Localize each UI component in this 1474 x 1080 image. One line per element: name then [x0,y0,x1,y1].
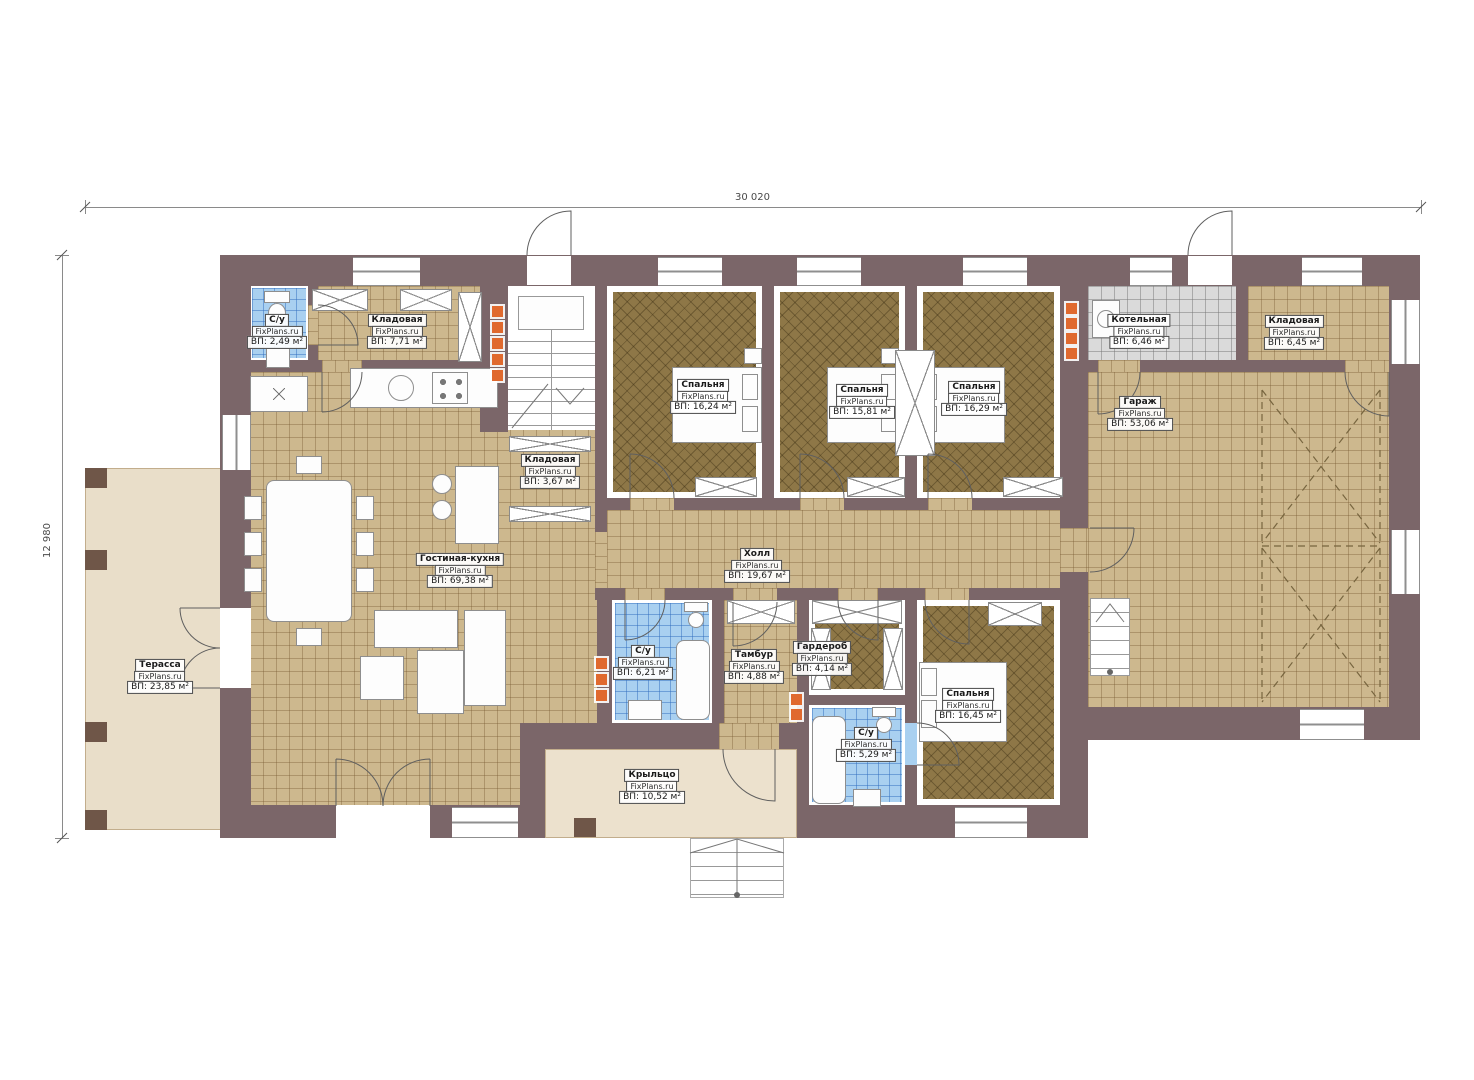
room-area: ВП: 6,45 м² [1264,337,1324,350]
door-opening [905,723,917,765]
bar-stool [432,500,452,520]
dimension-extension [55,838,69,839]
wall-partition [905,588,917,805]
room-label-porch: Крыльцо FixPlans.ru ВП: 10,52 м² [619,770,685,804]
pillow [742,406,758,432]
room-area: ВП: 3,67 м² [520,476,580,489]
room-label-storage-right: Кладовая FixPlans.ru ВП: 6,45 м² [1264,316,1324,350]
door-opening [928,498,972,510]
dimension-extension [55,255,69,256]
room-area: ВП: 6,21 м² [613,667,673,680]
wall-partition [712,597,724,723]
room-label-bedroom1: Спальня FixPlans.ru ВП: 16,24 м² [670,380,736,414]
radiator-section [791,694,802,705]
window [452,807,518,838]
washbasin [628,700,662,720]
wardrobe [695,477,757,497]
chair [244,532,262,556]
chair [356,532,374,556]
nightstand [744,348,762,364]
room-area: ВП: 2,49 м² [247,336,307,349]
room-label-hall: Холл FixPlans.ru ВП: 19,67 м² [724,549,790,583]
terrace-pillar [85,550,107,570]
room-area: ВП: 16,29 м² [941,403,1007,416]
dimension-extension [85,200,86,214]
room-label-bedroom2: Спальня FixPlans.ru ВП: 15,81 м² [829,385,895,419]
wall-partition [762,286,774,498]
double-door-opening [336,805,430,838]
room-label-vestibule: Тамбур FixPlans.ru ВП: 4,88 м² [724,650,784,684]
exterior-door-opening [1188,256,1232,285]
dimension-width: 30 020 [735,192,770,203]
terrace-pillar [85,722,107,742]
door-opening [800,498,844,510]
wardrobe [400,289,452,311]
room-area: ВП: 4,14 м² [792,663,852,676]
door-opening [308,305,318,345]
wardrobe [895,350,935,456]
radiator-section [596,674,607,685]
wardrobe [883,628,903,690]
kitchen-island [455,466,499,544]
kitchen-stove [432,372,468,404]
room-label-garage: Гараж FixPlans.ru ВП: 53,06 м² [1107,397,1173,431]
room-area: ВП: 16,45 м² [935,710,1001,723]
porch-pillar [574,818,596,837]
dimension-extension [1421,200,1422,214]
room-label-bathroom-mid: С/у FixPlans.ru ВП: 6,21 м² [613,646,673,680]
wall-partition [809,695,905,705]
radiator-section [492,322,503,333]
coffee-table [360,656,404,700]
radiator-section [492,370,503,381]
room-area: ВП: 69,38 м² [427,575,493,588]
room-area: ВП: 19,67 м² [724,570,790,583]
door-opening [838,588,878,600]
room-label-living: Гостиная-кухня FixPlans.ru ВП: 69,38 м² [416,554,504,588]
terrace-floor [85,468,222,830]
radiator-section [492,354,503,365]
living-hall-passage [595,530,607,588]
radiator-section [1066,303,1077,314]
window [797,257,861,286]
room-area: ВП: 23,85 м² [127,681,193,694]
garage-steps [1090,598,1130,676]
wardrobe [509,436,591,452]
wall-exterior-bottom-mid [797,805,1088,838]
room-label-storage-small: Кладовая FixPlans.ru ВП: 3,67 м² [520,455,580,489]
room-label-boiler: Котельная FixPlans.ru ВП: 6,46 м² [1107,315,1170,349]
pillow [742,374,758,400]
chair [356,568,374,592]
wardrobe [988,602,1042,626]
dimension-line-left [62,255,63,838]
chair [296,456,322,474]
window [1130,257,1172,286]
dimension-line-top [85,207,1421,208]
room-area: ВП: 4,88 м² [724,671,784,684]
bar-stool [432,474,452,494]
washbasin [266,348,290,368]
appliance-mark [273,388,285,400]
room-area: ВП: 15,81 м² [829,406,895,419]
chair [244,496,262,520]
wall-partition [597,588,612,723]
window [1300,709,1364,740]
radiator-section [596,658,607,669]
door-opening [925,588,969,600]
floor-plan: 30 020 12 980 Терасса FixPlans.ru ВП: 23… [0,0,1474,1080]
toilet [684,602,708,612]
porch-steps [690,838,784,898]
room-label-bathroom-top: С/у FixPlans.ru ВП: 2,49 м² [247,315,307,349]
washbasin [853,789,881,807]
room-label-bedroom4: Спальня FixPlans.ru ВП: 16,45 м² [935,689,1001,723]
room-area: ВП: 6,46 м² [1109,336,1169,349]
window [963,257,1027,286]
chair [296,628,322,646]
hall-floor [607,510,1060,588]
room-label-bathroom-bottom: С/у FixPlans.ru ВП: 5,29 м² [836,728,896,762]
wardrobe [812,600,902,624]
wall-partition [1236,286,1248,372]
radiator-section [1066,333,1077,344]
staircase-divider [551,330,552,430]
room-area: ВП: 10,52 м² [619,791,685,804]
wall-garage-bottom [1085,707,1420,740]
terrace-pillar [85,468,107,488]
wardrobe [458,292,482,362]
door-opening [733,588,777,600]
radiator-section [596,690,607,701]
room-area: ВП: 53,06 м² [1107,418,1173,431]
toilet [872,707,896,717]
window [353,257,420,286]
door-opening [1345,360,1389,372]
wall-partition [595,286,607,532]
radiator-section [1066,318,1077,329]
room-area: ВП: 5,29 м² [836,749,896,762]
room-label-storage-top: Кладовая FixPlans.ru ВП: 7,71 м² [367,315,427,349]
chair [244,568,262,592]
entrance-opening [719,723,779,749]
door-opening [1060,528,1088,572]
wardrobe [312,289,368,311]
wardrobe [509,506,591,522]
bathtub [676,640,710,720]
window [1391,300,1420,364]
room-area: ВП: 7,71 м² [367,336,427,349]
room-label-terrace: Терасса FixPlans.ru ВП: 23,85 м² [127,660,193,694]
radiator-section [492,306,503,317]
dining-table [266,480,352,622]
door-opening [630,498,674,510]
window [955,807,1027,838]
kitchen-counter [350,368,498,408]
chair [356,496,374,520]
window [658,257,722,286]
wardrobe [847,477,905,497]
sofa [464,610,506,706]
dimension-height: 12 980 [42,523,53,558]
window [222,415,251,470]
radiator-section [1066,348,1077,359]
wardrobe [1003,477,1063,497]
exterior-door-opening [527,256,571,285]
toilet [264,291,290,303]
staircase [518,296,584,330]
terrace-pillar [85,810,107,830]
room-label-bedroom3: Спальня FixPlans.ru ВП: 16,29 м² [941,382,1007,416]
terrace-door-opening [220,608,251,688]
sofa [374,610,458,648]
radiator-section [492,338,503,349]
window [1391,530,1420,594]
room-area: ВП: 16,24 м² [670,401,736,414]
door-opening [625,588,665,600]
toilet-bowl [688,612,704,628]
kitchen-sink [388,375,414,401]
room-label-wardrobe-room: Гардероб FixPlans.ru ВП: 4,14 м² [792,642,852,676]
door-opening [1098,360,1140,372]
wardrobe [727,600,795,624]
window [1302,257,1362,286]
radiator-section [791,709,802,720]
sofa-corner [417,650,464,714]
